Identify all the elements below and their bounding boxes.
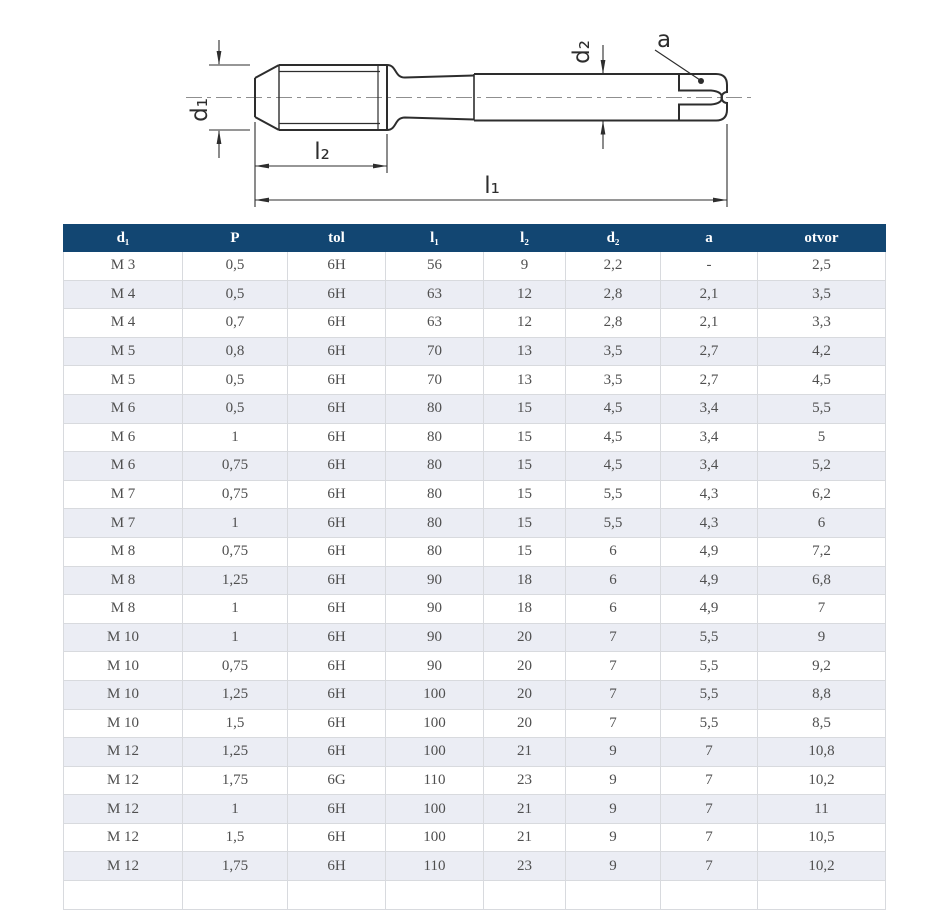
table-cell: 9,2 [758,652,886,681]
table-cell: 4,5 [566,452,661,481]
table-cell: 15 [484,537,566,566]
table-cell: 6H [288,423,386,452]
table-cell: 7 [661,795,758,824]
dim-label-l1: l₁ [484,173,500,199]
column-header-p: P [183,225,288,252]
table-cell: 6H [288,252,386,281]
table-cell: 23 [484,852,566,881]
table-cell: 100 [386,795,484,824]
table-cell: 18 [484,566,566,595]
table-cell: 2,7 [661,337,758,366]
table-cell: 63 [386,309,484,338]
table-cell: 6 [566,537,661,566]
table-cell: M 10 [64,709,183,738]
table-row: M 40,56H63122,82,13,5 [64,280,886,309]
table-cell: 15 [484,394,566,423]
table-row: M 60,756H80154,53,45,2 [64,452,886,481]
table-cell: 90 [386,566,484,595]
table-cell: 7 [758,595,886,624]
table-cell: 6,2 [758,480,886,509]
tap-drawing-svg: d₁ d₂ l₂ l₁ a [0,0,943,222]
table-cell: M 4 [64,309,183,338]
table-cell: 2,5 [758,252,886,281]
table-row: M 30,56H5692,2-2,5 [64,252,886,281]
table-cell: M 12 [64,738,183,767]
table-cell: 9 [566,823,661,852]
table-cell: M 6 [64,452,183,481]
table-cell: 8,8 [758,680,886,709]
table-cell: 6,8 [758,566,886,595]
table-row: M 616H80154,53,45 [64,423,886,452]
table-cell: 15 [484,509,566,538]
table-cell: 4,3 [661,509,758,538]
table-header: d₁ P tol l₁ l₂ d₂ a otvor [64,225,886,252]
table-cell: 1,5 [183,823,288,852]
table-cell: 7 [661,823,758,852]
table-cell: 0,5 [183,280,288,309]
table-cell: 5,5 [758,394,886,423]
table-cell: 4,9 [661,595,758,624]
table-cell: 80 [386,509,484,538]
table-row: M 101,256H1002075,58,8 [64,680,886,709]
table-cell: 10,5 [758,823,886,852]
table-cell: 80 [386,394,484,423]
table-cell: 80 [386,452,484,481]
table-cell: 7 [661,852,758,881]
table-cell: 110 [386,852,484,881]
table-cell: M 3 [64,252,183,281]
table-cell: 20 [484,680,566,709]
table-cell: 6G [288,766,386,795]
table-cell: 6H [288,738,386,767]
table-row: M 40,76H63122,82,13,3 [64,309,886,338]
table-cell: 21 [484,738,566,767]
table-cell: 6 [566,595,661,624]
table-cell: 0,8 [183,337,288,366]
table-row: M 81,256H901864,96,8 [64,566,886,595]
table-cell: 6H [288,566,386,595]
table-cell: 6H [288,595,386,624]
table-cell: 15 [484,452,566,481]
table-cell: 10,2 [758,766,886,795]
table-cell: M 12 [64,795,183,824]
table-cell: 9 [758,623,886,652]
table-cell: 80 [386,537,484,566]
table-cell: 1 [183,595,288,624]
table-row: M 101,56H1002075,58,5 [64,709,886,738]
table-cell: M 10 [64,623,183,652]
table-cell: 90 [386,623,484,652]
table-cell: 9 [566,852,661,881]
table-row: M 60,56H80154,53,45,5 [64,394,886,423]
table-cell: 6H [288,852,386,881]
table-cell: 3,4 [661,452,758,481]
dim-label-d1: d₁ [187,98,213,122]
table-cell: 4,9 [661,566,758,595]
table-cell: 80 [386,423,484,452]
table-cell: 6 [566,566,661,595]
table-cell: 110 [386,766,484,795]
table-cell: 100 [386,680,484,709]
table-row: M 1016H902075,59 [64,623,886,652]
table-cell: 20 [484,652,566,681]
table-cell: 90 [386,652,484,681]
table-cell: 6H [288,823,386,852]
table-cell: 7 [661,738,758,767]
table-cell: 9 [566,795,661,824]
table-row: M 80,756H801564,97,2 [64,537,886,566]
table-cell: 0,75 [183,652,288,681]
table-cell: 0,75 [183,537,288,566]
table-cell: 4,5 [566,423,661,452]
table-cell: 90 [386,595,484,624]
table-cell: M 10 [64,680,183,709]
column-header-tol: tol [288,225,386,252]
table-cell: 4,3 [661,480,758,509]
table-cell: 7 [566,652,661,681]
table-cell: 0,5 [183,366,288,395]
table-cell: 10,8 [758,738,886,767]
table-cell: 1,5 [183,709,288,738]
table-row: M 70,756H80155,54,36,2 [64,480,886,509]
table-cell: 5,5 [661,709,758,738]
table-cell: 5,5 [566,509,661,538]
table-cell: 6H [288,709,386,738]
table-row: M 50,86H70133,52,74,2 [64,337,886,366]
table-cell: 0,5 [183,394,288,423]
table-row: M 50,56H70133,52,74,5 [64,366,886,395]
table-cell: 100 [386,823,484,852]
table-row: M 1216H100219711 [64,795,886,824]
table-cell: 1 [183,623,288,652]
dim-label-a: a [657,27,671,53]
table-cell: 7 [661,766,758,795]
table-cell: 6H [288,652,386,681]
dim-label-d2: d₂ [569,40,595,64]
table-row: M 716H80155,54,36 [64,509,886,538]
table-cell: 7 [566,709,661,738]
table-cell: 1,25 [183,566,288,595]
column-header-d2: d₂ [566,225,661,252]
table-cell: M 8 [64,537,183,566]
table-cell: 2,1 [661,309,758,338]
table-cell: 100 [386,709,484,738]
tap-technical-drawing: d₁ d₂ l₂ l₁ a [0,0,943,222]
table-cell: M 12 [64,823,183,852]
table-cell: 10,2 [758,852,886,881]
column-header-d1: d₁ [64,225,183,252]
table-cell: M 8 [64,566,183,595]
table-cell: 6H [288,480,386,509]
table-cell: 5,5 [566,480,661,509]
table-cell: 11 [758,795,886,824]
table-cell: 100 [386,738,484,767]
table-cell: 56 [386,252,484,281]
table-cell: 6H [288,623,386,652]
table-cell: 3,3 [758,309,886,338]
table-cell: 3,4 [661,423,758,452]
table-cell: 1 [183,423,288,452]
column-header-otvor: otvor [758,225,886,252]
table-cell: 2,2 [566,252,661,281]
table-cell: 2,8 [566,309,661,338]
table-cell: 6H [288,537,386,566]
table-cell: 8,5 [758,709,886,738]
table-cell: 23 [484,766,566,795]
table-cell: 0,5 [183,252,288,281]
table-cell: 12 [484,309,566,338]
table-cell: 3,5 [566,366,661,395]
table-cell: 3,5 [566,337,661,366]
table-cell: M 4 [64,280,183,309]
table-cell: 1,25 [183,680,288,709]
table-cell: M 5 [64,366,183,395]
table-cell: M 6 [64,423,183,452]
table-row: M 816H901864,97 [64,595,886,624]
table-cell: 1,75 [183,766,288,795]
table-cell: 6 [758,509,886,538]
table-cell: 7 [566,680,661,709]
table-cell: 5 [758,423,886,452]
table-cell: 9 [484,252,566,281]
table-cell: 80 [386,480,484,509]
table-cell: 1 [183,509,288,538]
table-cell: 4,9 [661,537,758,566]
table-cell: 0,75 [183,480,288,509]
table-cell: M 7 [64,509,183,538]
table-cell: 2,7 [661,366,758,395]
table-cell: 3,5 [758,280,886,309]
table-cell: 6H [288,337,386,366]
table-cell: M 7 [64,480,183,509]
table-cell: 9 [566,738,661,767]
table-cell: M 12 [64,852,183,881]
table-cell: 2,8 [566,280,661,309]
table-cell: 13 [484,366,566,395]
table-cell: 9 [566,766,661,795]
table-row: M 121,756G110239710,2 [64,766,886,795]
table-cell: 0,7 [183,309,288,338]
table-cell: M 12 [64,766,183,795]
table-cell: - [661,252,758,281]
column-header-l2: l₂ [484,225,566,252]
tap-spec-table: d₁ P tol l₁ l₂ d₂ a otvor M 30,56H5692,2… [63,224,886,910]
table-body: M 30,56H5692,2-2,5M 40,56H63122,82,13,5M… [64,252,886,910]
table-cell: 0,75 [183,452,288,481]
table-cell: 15 [484,480,566,509]
table-cell: 6H [288,366,386,395]
dim-label-l2: l₂ [314,139,330,165]
table-cell: 12 [484,280,566,309]
table-row: M 121,256H100219710,8 [64,738,886,767]
table-cell: 6H [288,795,386,824]
table-cell: 5,5 [661,680,758,709]
leader-dot [698,78,704,84]
table-cell: 21 [484,823,566,852]
table-cell: 20 [484,623,566,652]
table-cell: 6H [288,394,386,423]
tap-spec-table-wrap: d₁ P tol l₁ l₂ d₂ a otvor M 30,56H5692,2… [63,224,885,910]
table-cell: 3,4 [661,394,758,423]
table-cell: 5,2 [758,452,886,481]
table-cell: 7 [566,623,661,652]
table-cell: 70 [386,337,484,366]
table-cell: M 5 [64,337,183,366]
table-cell: 13 [484,337,566,366]
table-cell: 6H [288,280,386,309]
table-cell: 4,5 [758,366,886,395]
table-cell: 5,5 [661,623,758,652]
table-cell: M 10 [64,652,183,681]
table-cell: 1,75 [183,852,288,881]
table-cell: 1 [183,795,288,824]
table-cell: 20 [484,709,566,738]
table-cell: 6H [288,509,386,538]
table-cell: 18 [484,595,566,624]
column-header-l1: l₁ [386,225,484,252]
table-cell: 7,2 [758,537,886,566]
table-cell: 70 [386,366,484,395]
column-header-a: a [661,225,758,252]
table-row: M 100,756H902075,59,2 [64,652,886,681]
table-cell: 6H [288,452,386,481]
table-cell: 4,2 [758,337,886,366]
table-cell: 6H [288,680,386,709]
table-row: M 121,56H100219710,5 [64,823,886,852]
table-cell: 2,1 [661,280,758,309]
table-row: M 121,756H110239710,2 [64,852,886,881]
table-cell: M 6 [64,394,183,423]
table-cell: 5,5 [661,652,758,681]
table-cell: M 8 [64,595,183,624]
table-cell: 4,5 [566,394,661,423]
table-cell: 15 [484,423,566,452]
table-cell: 21 [484,795,566,824]
table-cell: 6H [288,309,386,338]
table-cell: 1,25 [183,738,288,767]
table-cell: 63 [386,280,484,309]
